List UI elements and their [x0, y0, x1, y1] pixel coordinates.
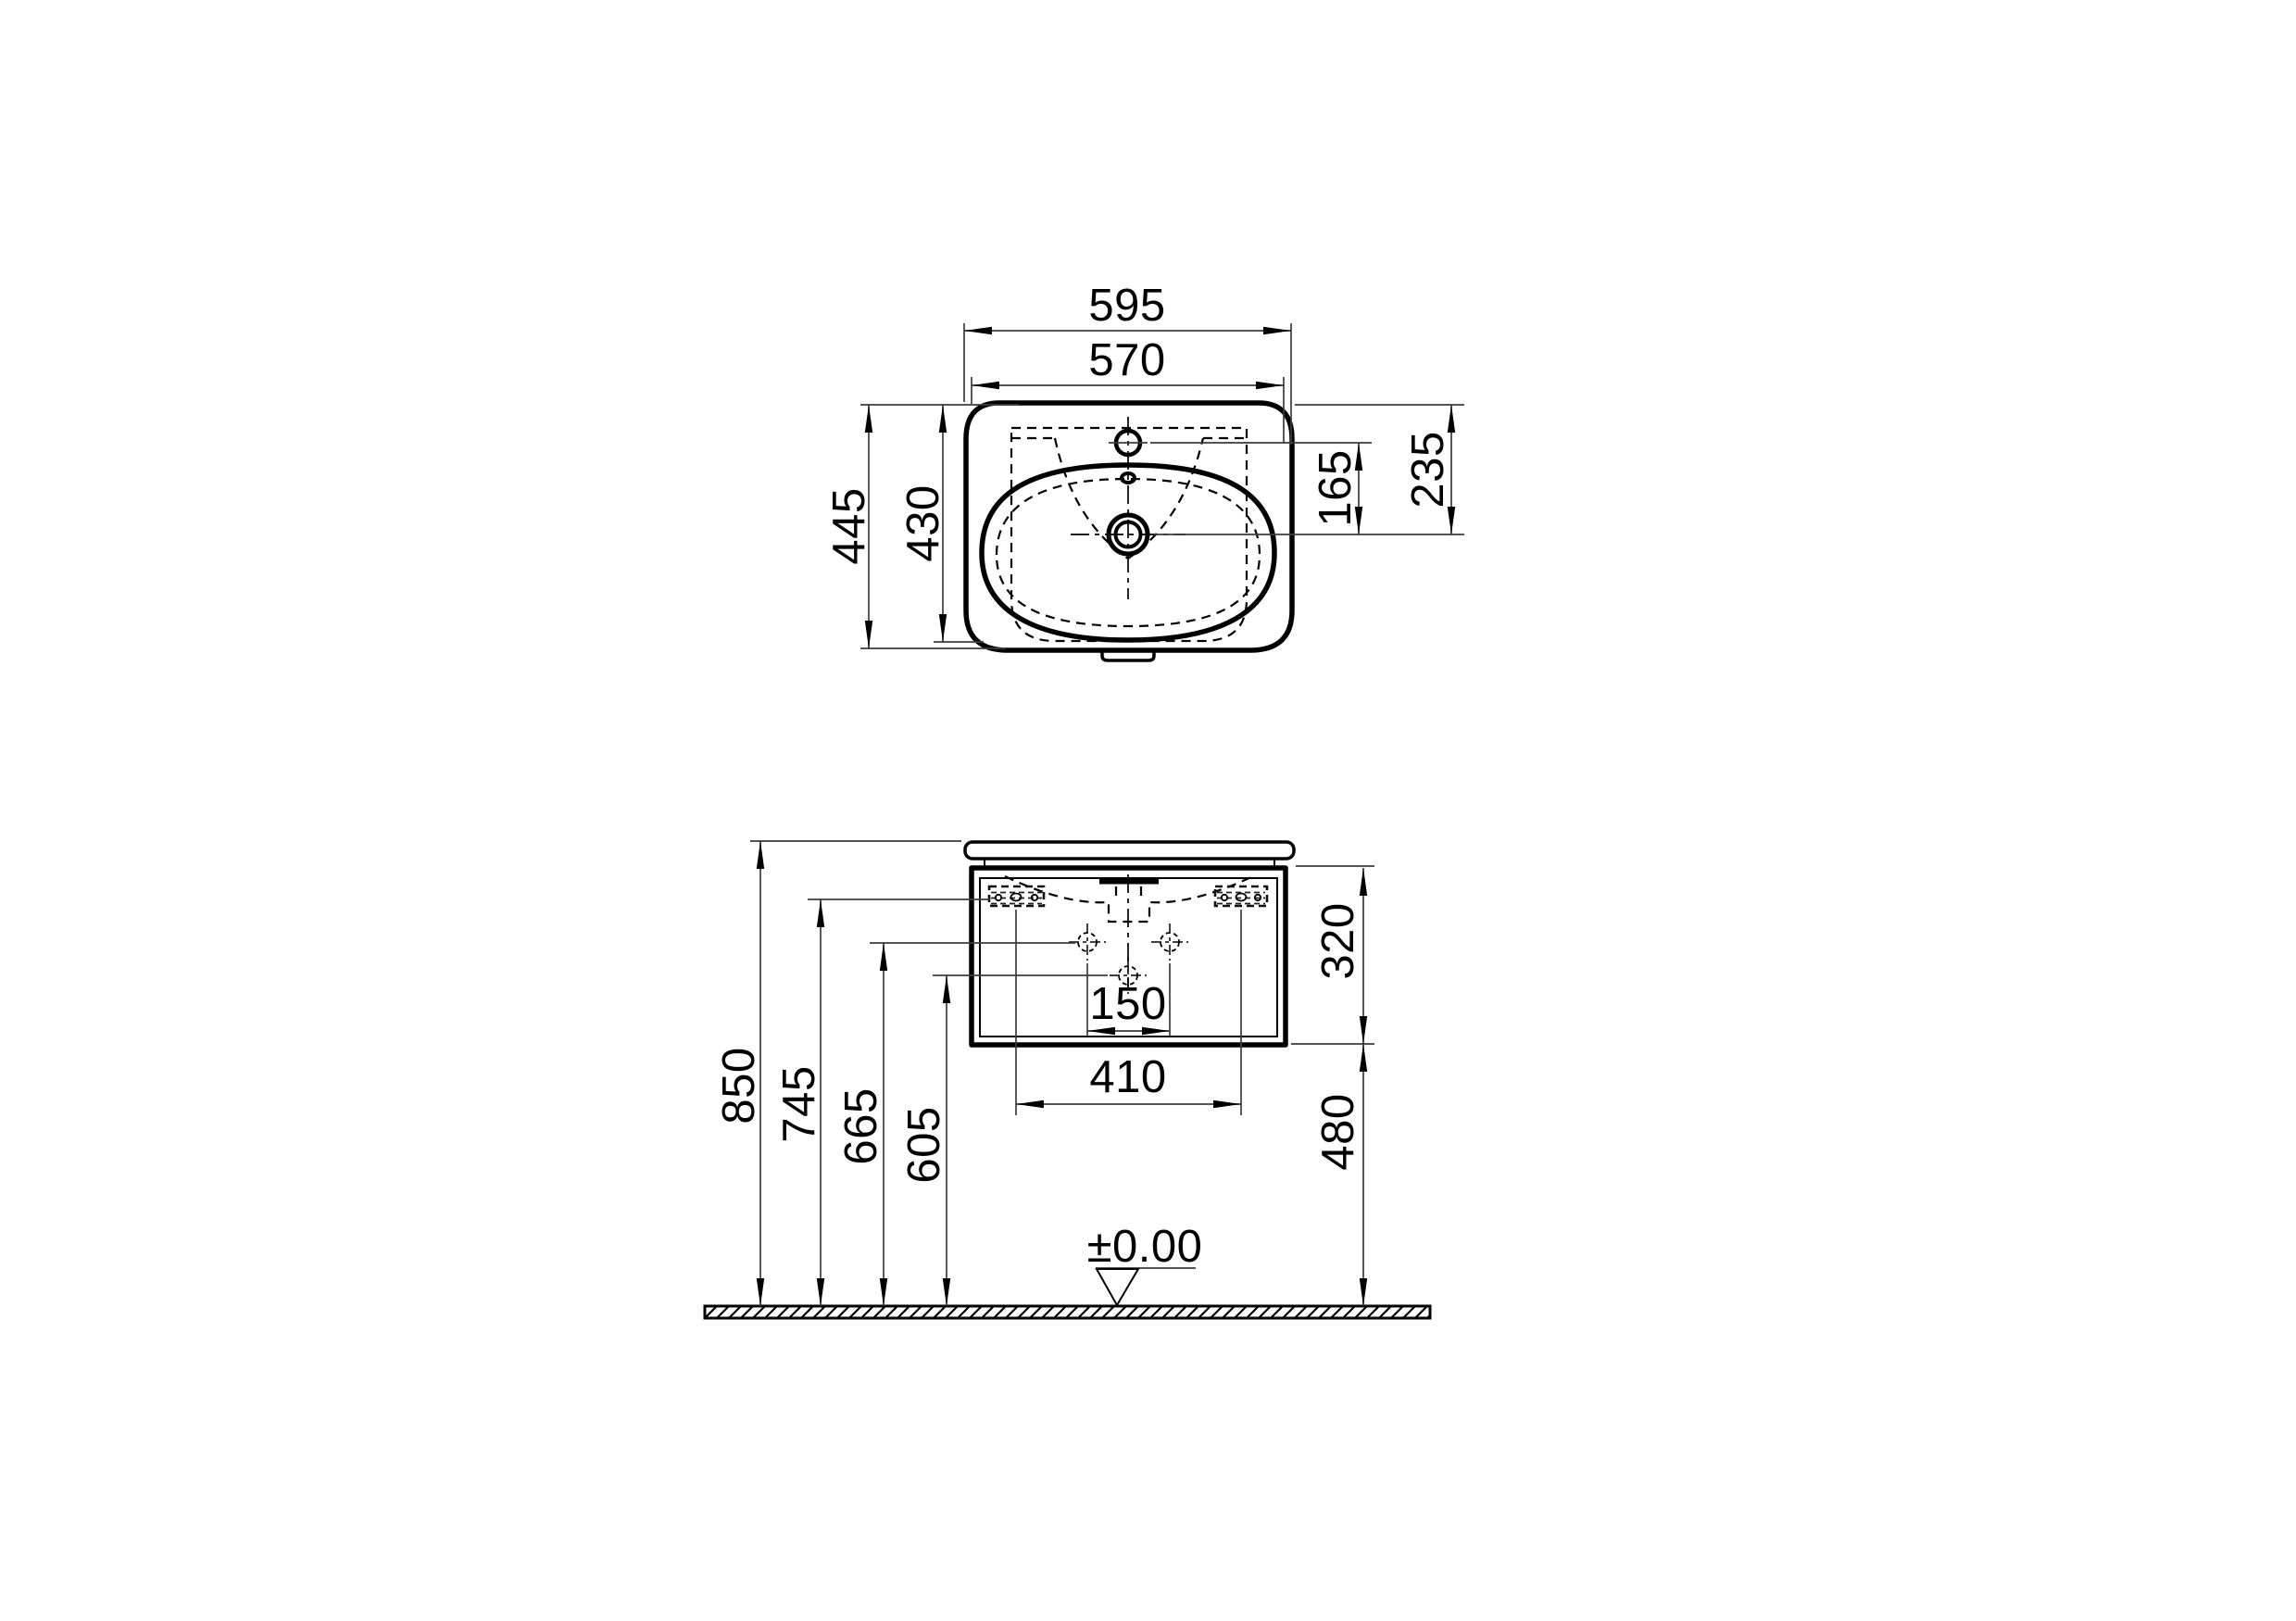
floor-datum-marker: ±0.00	[1087, 1222, 1203, 1305]
dim-tap-to-drain-165: 165	[1311, 443, 1361, 534]
washbasin-dimension-drawing: 595 570 445 430 165 235	[0, 0, 2296, 1621]
plan-view: 595 570 445 430 165 235	[824, 281, 1464, 660]
dim-label-410: 410	[1089, 1052, 1166, 1102]
dim-upper-fixing-height-665: 665	[836, 943, 1075, 1306]
fixing-hole-cross	[1069, 924, 1106, 961]
front-view: 850 745 665 605 150 410	[705, 841, 1430, 1318]
basin-rim-slab	[965, 842, 1294, 859]
dim-rear-to-drain-235: 235	[1403, 405, 1453, 534]
bracket-slot-hole	[1236, 894, 1247, 901]
dim-label-595: 595	[1088, 281, 1165, 331]
mounting-bracket-right	[1215, 886, 1267, 906]
dim-rim-height-850: 850	[714, 841, 961, 1306]
dim-label-605: 605	[899, 1106, 949, 1183]
dim-label-320: 320	[1313, 902, 1363, 979]
datum-triangle-icon	[1097, 1269, 1138, 1305]
dim-label-570: 570	[1088, 335, 1165, 385]
dim-label-235: 235	[1403, 431, 1453, 508]
dim-label-445: 445	[824, 487, 874, 564]
dim-label-745: 745	[774, 1065, 824, 1142]
dim-label-150: 150	[1089, 979, 1166, 1029]
dim-label-480: 480	[1313, 1093, 1363, 1170]
dim-siphon-height-605: 605	[899, 975, 1108, 1306]
technical-drawing-canvas: 595 570 445 430 165 235	[0, 0, 2296, 1621]
fixing-hole-cross	[1151, 924, 1188, 961]
dim-label-665: 665	[836, 1087, 886, 1164]
dim-label-165: 165	[1311, 449, 1361, 526]
floor-slab	[705, 1306, 1430, 1318]
fixing-hole-symbol-right	[1151, 924, 1188, 961]
dim-inner-depth-430: 430	[898, 405, 984, 642]
dim-floor-clearance-480: 480	[1313, 1044, 1363, 1306]
datum-label: ±0.00	[1087, 1222, 1203, 1272]
dim-cabinet-height-320: 320	[1291, 866, 1374, 1044]
fixing-hole-symbol-left	[1069, 924, 1106, 961]
bracket-slot-hole	[1011, 894, 1022, 901]
drain-slot	[1099, 879, 1159, 885]
dim-label-430: 430	[898, 484, 948, 561]
dim-label-850: 850	[714, 1047, 764, 1124]
